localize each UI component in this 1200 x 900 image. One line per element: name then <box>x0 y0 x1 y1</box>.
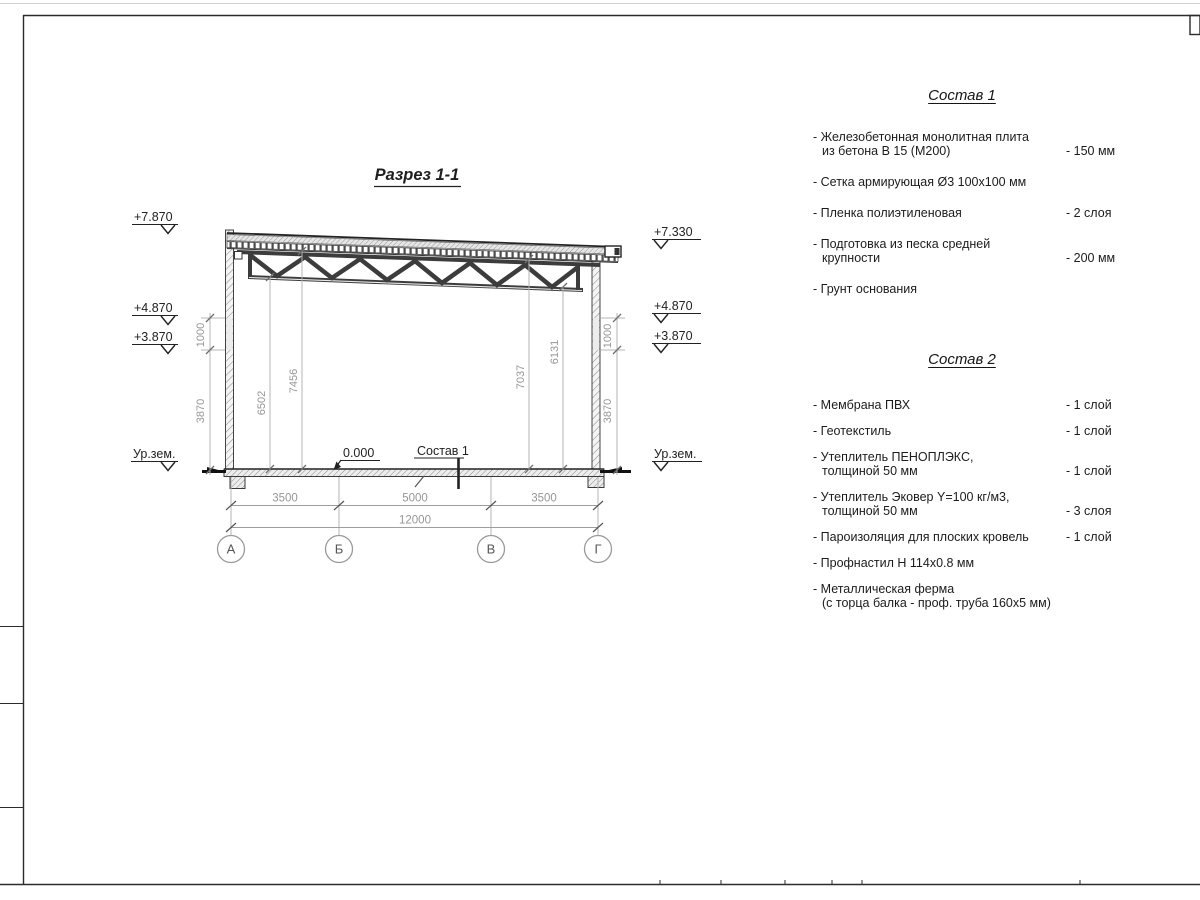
material-item: - Железобетонная монолитная плита из бет… <box>813 130 1111 158</box>
title-block-ticks <box>660 880 1080 884</box>
ground-level-left: Ур.зем. <box>133 447 175 461</box>
material-item: - Пароизоляция для плоских кровель - 1 с… <box>813 530 1111 544</box>
material-text: - Пленка полиэтиленовая <box>813 206 1066 220</box>
left-dimension-chain: 1000 3870 <box>195 313 225 475</box>
elevation-3870-right: +3.870 <box>654 329 693 343</box>
material-text: - Железобетонная монолитная плита из бет… <box>813 130 1066 158</box>
material-item: - Утеплитель Эковер Y=100 кг/м3, толщино… <box>813 490 1111 518</box>
section-title: Разрез 1-1 <box>374 166 461 187</box>
material-text: - Подготовка из песка средней крупности <box>813 237 1066 265</box>
material-value: - 2 слоя <box>1066 206 1111 220</box>
material-text: - Профнастил Н 114x0.8 мм <box>813 556 1066 570</box>
dim-span-3500b: 3500 <box>531 493 557 505</box>
right-footing <box>588 477 604 488</box>
material-value: - 1 слой <box>1066 464 1112 478</box>
dim-total-12000: 12000 <box>399 515 431 527</box>
material-value: - 200 мм <box>1066 251 1115 265</box>
dim-7456: 7456 <box>288 369 300 393</box>
axis-label-v: В <box>487 542 496 557</box>
dim-right-1000: 1000 <box>602 324 614 348</box>
material-text: - Мембрана ПВХ <box>813 398 1066 412</box>
section-title-text: Разрез 1-1 <box>375 166 460 184</box>
elevation-marks-right: +7.330 +4.870 +3.870 Ур.зем. <box>652 225 702 471</box>
floor-callout: Состав 1 <box>414 444 469 489</box>
material-value: - 1 слой <box>1066 398 1112 412</box>
elevation-arrow-icon <box>161 316 175 325</box>
material-item: - Профнастил Н 114x0.8 мм <box>813 556 1111 570</box>
sostav-1-title: Состав 1 <box>813 87 1111 104</box>
material-text: - Утеплитель Эковер Y=100 кг/м3, толщино… <box>813 490 1066 518</box>
truss-left-seat <box>235 252 243 260</box>
sostav-2-title: Состав 2 <box>813 351 1111 368</box>
material-value: - 1 слой <box>1066 530 1112 544</box>
right-column-band <box>593 318 599 350</box>
floor-callout-text: Состав 1 <box>417 444 469 458</box>
elevation-marks-left: +7.870 +4.870 +3.870 Ур.зем. <box>131 210 178 471</box>
elevation-3870-left: +3.870 <box>134 330 173 344</box>
axis-label-g: Г <box>594 542 601 557</box>
bottom-dimensions: 3500 5000 3500 12000 А Б В Г <box>218 477 612 563</box>
dim-6502: 6502 <box>256 391 268 415</box>
zero-level-text: 0.000 <box>343 446 374 460</box>
elevation-arrow-icon <box>654 344 668 353</box>
dim-left-1000: 1000 <box>195 323 207 347</box>
zero-level-mark: 0.000 <box>334 446 381 470</box>
right-dimension-chain: 1000 3870 <box>601 313 625 475</box>
floor-slab <box>224 469 604 477</box>
material-value: - 3 слоя <box>1066 504 1111 518</box>
dim-6131: 6131 <box>549 340 561 364</box>
material-item: - Мембрана ПВХ - 1 слой <box>813 398 1111 412</box>
material-text: - Грунт основания <box>813 282 1066 296</box>
sostav-1-list: Состав 1 - Железобетонная монолитная пли… <box>813 87 1111 313</box>
material-value: - 1 слой <box>1066 424 1112 438</box>
dim-span-3500a: 3500 <box>272 493 298 505</box>
sostav-2-list: Состав 2 - Мембрана ПВХ - 1 слой - Геоте… <box>813 351 1111 622</box>
ground-level-right: Ур.зем. <box>654 447 696 461</box>
elevation-arrow-icon <box>161 462 175 471</box>
material-item: - Сетка армирующая Ø3 100x100 мм <box>813 175 1111 189</box>
dim-7037: 7037 <box>515 365 527 389</box>
material-text: - Геотекстиль <box>813 424 1066 438</box>
elevation-arrow-icon <box>654 240 668 249</box>
left-column-band <box>227 318 233 350</box>
dim-left-3870: 3870 <box>195 399 207 423</box>
dim-span-5000: 5000 <box>402 493 428 505</box>
axis-label-a: А <box>227 542 236 557</box>
columns <box>226 230 601 469</box>
material-item: - Геотекстиль - 1 слой <box>813 424 1111 438</box>
floor-and-ground <box>202 467 631 489</box>
elevation-4870-left: +4.870 <box>134 301 173 315</box>
material-text: - Металлическая ферма (с торца балка - п… <box>813 582 1066 610</box>
elevation-arrow-icon <box>654 314 668 323</box>
material-text: - Сетка армирующая Ø3 100x100 мм <box>813 175 1066 189</box>
material-text: - Пароизоляция для плоских кровель <box>813 530 1066 544</box>
material-item: - Металлическая ферма (с торца балка - п… <box>813 582 1111 610</box>
elevation-arrow-icon <box>654 462 668 471</box>
right-column <box>592 258 600 469</box>
material-item: - Утеплитель ПЕНОПЛЭКС, толщиной 50 мм -… <box>813 450 1111 478</box>
material-text: - Утеплитель ПЕНОПЛЭКС, толщиной 50 мм <box>813 450 1066 478</box>
elevation-arrow-icon <box>161 225 175 234</box>
elevation-4870-right: +4.870 <box>654 299 693 313</box>
elevation-7870: +7.870 <box>134 210 173 224</box>
left-footing <box>230 477 245 489</box>
material-value: - 150 мм <box>1066 144 1115 158</box>
material-item: - Пленка полиэтиленовая - 2 слоя <box>813 206 1111 220</box>
corner-stamp-box <box>1190 16 1200 35</box>
roof-assembly <box>227 233 621 267</box>
elevation-arrow-icon <box>161 345 175 354</box>
material-item: - Подготовка из песка средней крупности … <box>813 237 1111 265</box>
slab-break-mark <box>415 476 424 487</box>
material-item: - Грунт основания <box>813 282 1111 296</box>
elevation-7330: +7.330 <box>654 225 693 239</box>
dim-right-3870: 3870 <box>602 399 614 423</box>
drawing-sheet: Разрез 1-1 <box>0 0 1200 900</box>
axis-label-b: Б <box>335 542 344 557</box>
